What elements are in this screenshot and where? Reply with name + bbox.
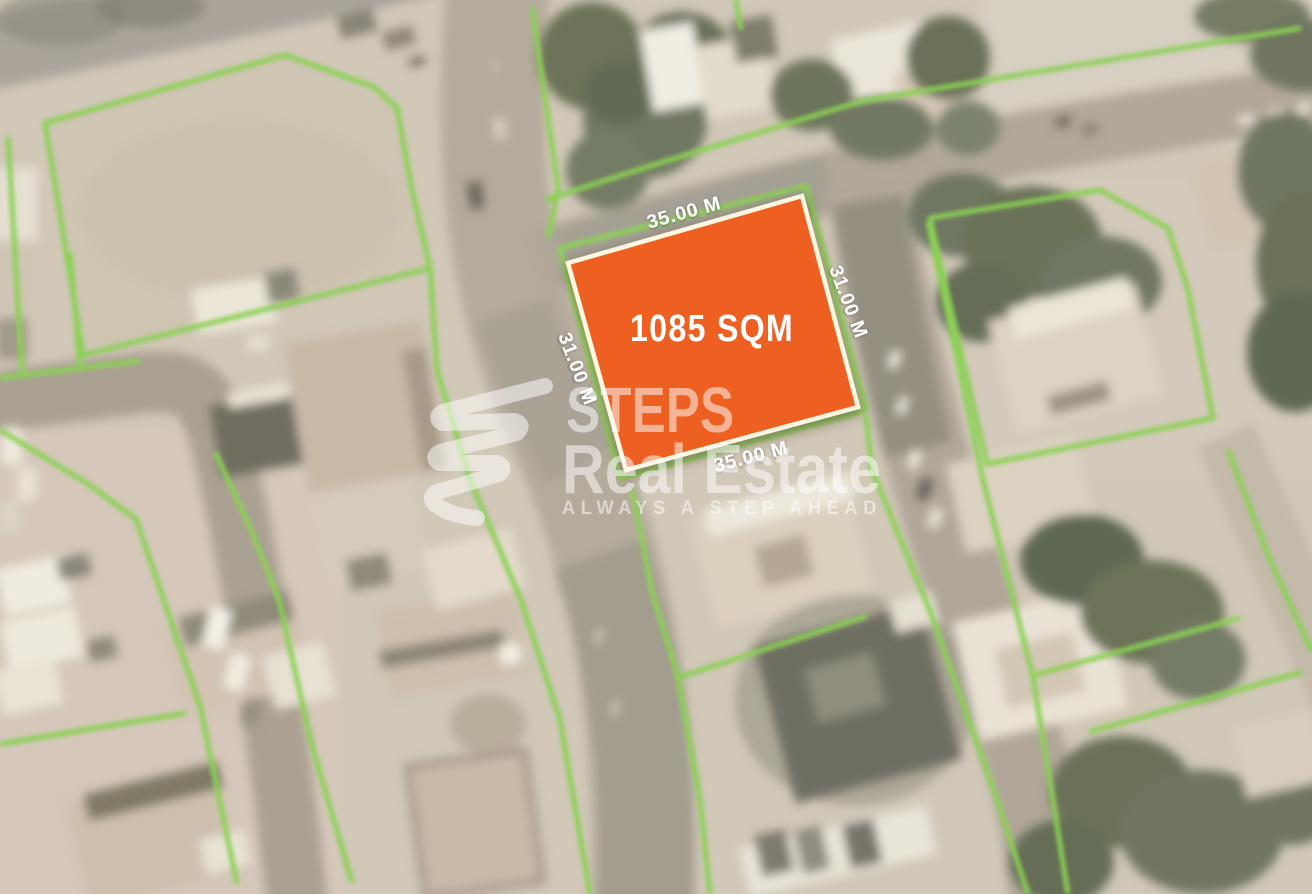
svg-text:Real Estate: Real Estate bbox=[562, 430, 881, 508]
svg-text:1085 SQM: 1085 SQM bbox=[630, 308, 794, 350]
svg-text:ALWAYS A STEP AHEAD: ALWAYS A STEP AHEAD bbox=[562, 498, 882, 519]
